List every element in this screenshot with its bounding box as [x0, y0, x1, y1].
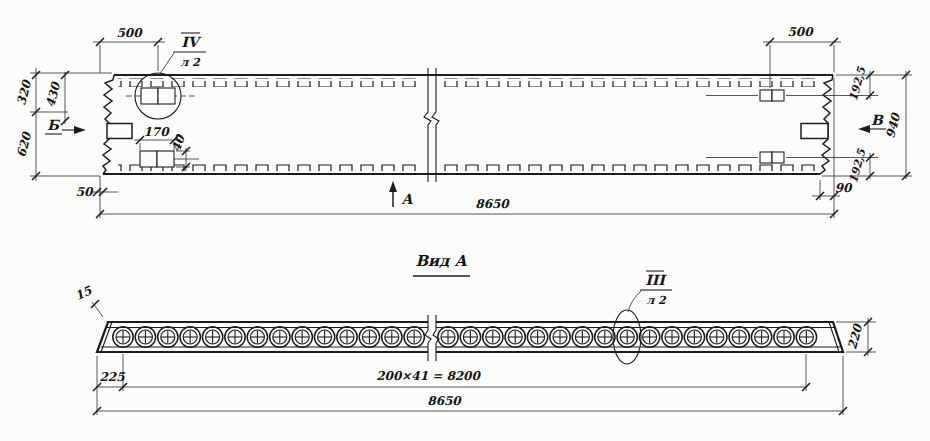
top-edge-notches-left	[118, 78, 422, 87]
bottom-view: Вид А III л 2 15	[73, 252, 876, 415]
section-b-label: Б	[47, 117, 61, 133]
hole-circle	[247, 327, 267, 347]
hole-circle	[527, 327, 547, 347]
hole-circle	[180, 327, 200, 347]
hole-circle	[135, 327, 155, 347]
dim-192-5-top: 192,5	[847, 64, 869, 102]
dim-170: 170	[143, 125, 170, 139]
hole-circle	[774, 327, 794, 347]
right-key-tongue	[801, 124, 828, 139]
hole-circle	[595, 327, 615, 347]
view-a-arrow: А	[389, 181, 413, 207]
top-edge-notches-right	[440, 78, 818, 87]
dim-620: 620	[14, 129, 34, 158]
dim-tick	[91, 300, 99, 308]
dim-500-left: 500	[116, 26, 143, 40]
dim-500-right: 500	[787, 25, 814, 39]
hole-circle	[617, 327, 637, 347]
detail-iv-numeral: IV	[181, 34, 202, 50]
dim-15: 15	[73, 283, 95, 303]
dim-192-5-bottom: 192,5	[847, 146, 869, 184]
view-a-arrow-label: А	[401, 191, 413, 207]
hole-circle	[438, 327, 458, 347]
detail-iii-numeral: III	[645, 272, 667, 288]
hole-circle	[707, 327, 727, 347]
detail-iv-sheet: л 2	[180, 56, 201, 69]
detail-iii-sheet: л 2	[646, 294, 667, 307]
hole-circle	[751, 327, 771, 347]
dim-320: 320	[14, 77, 34, 106]
hole-circle	[505, 327, 525, 347]
hole-circle	[158, 327, 178, 347]
dim-940: 940	[883, 110, 903, 139]
section-v-label: В	[871, 112, 884, 128]
hole-circle	[314, 327, 334, 347]
bottom-view-dimensions: 15 225 200×41 = 8200 8650 220	[73, 283, 876, 415]
dim-spacing: 200×41 = 8200	[376, 369, 481, 383]
section-arrow-v: В	[858, 112, 886, 133]
hole-circle	[796, 327, 816, 347]
hole-circle	[572, 327, 592, 347]
hole-circle	[270, 327, 290, 347]
dim-220: 220	[845, 321, 865, 350]
detail-iv-leader	[159, 53, 174, 75]
hole-circle	[225, 327, 245, 347]
embedded-plates-right	[706, 90, 784, 163]
dim-430: 430	[43, 79, 63, 108]
hole-circle	[113, 327, 133, 347]
hole-circle	[382, 327, 402, 347]
hole-circle	[729, 327, 749, 347]
break-line	[424, 68, 439, 182]
hole-circle	[292, 327, 312, 347]
detail-iii-leader	[628, 291, 641, 312]
detail-iii: III л 2	[613, 271, 672, 364]
hole-circle	[684, 327, 704, 347]
hole-circle	[359, 327, 379, 347]
hole-circle	[404, 327, 424, 347]
left-key-tongue	[107, 124, 132, 139]
top-view-dimensions: 500 500 320 620 430 50 8650	[14, 25, 912, 218]
dim-50: 50	[76, 185, 94, 199]
bottom-edge-notches-right	[440, 163, 816, 172]
top-view: IV л 2 170 40	[14, 25, 912, 218]
hole-row	[113, 327, 817, 347]
dim-225: 225	[99, 370, 125, 384]
panel-outline	[103, 68, 833, 182]
hole-circle	[550, 327, 570, 347]
dim-8650-bottom: 8650	[427, 394, 462, 408]
hole-circle	[460, 327, 480, 347]
engineering-drawing: IV л 2 170 40	[0, 0, 930, 441]
hole-circle	[662, 327, 682, 347]
dim-8650-top: 8650	[475, 197, 510, 211]
hole-circle	[202, 327, 222, 347]
bottom-view-title: Вид А	[415, 252, 467, 270]
hole-circle	[483, 327, 503, 347]
drawing-sheet: IV л 2 170 40	[0, 0, 930, 441]
hole-circle	[337, 327, 357, 347]
hole-circle	[639, 327, 659, 347]
